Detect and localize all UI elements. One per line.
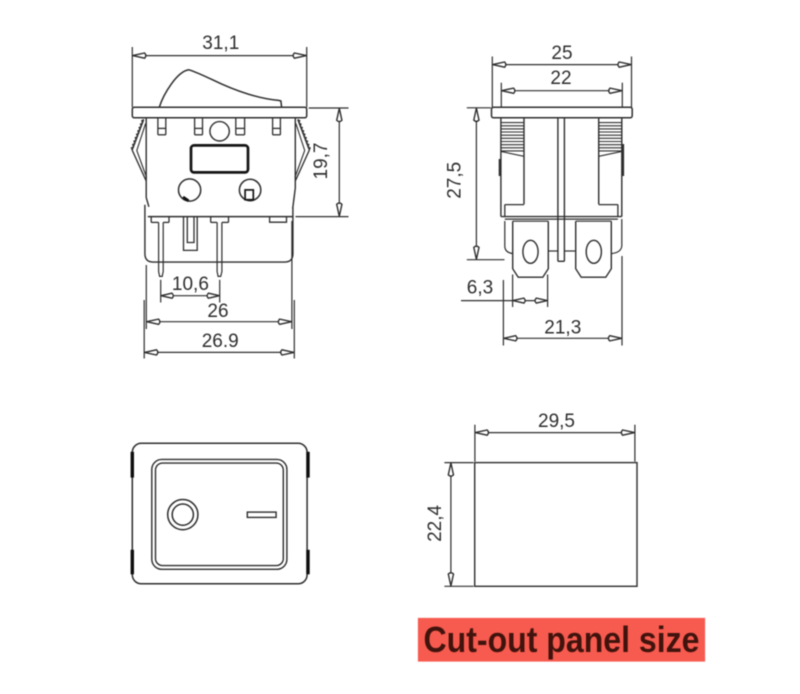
svg-text:22,4: 22,4 bbox=[425, 504, 446, 541]
svg-text:21,3: 21,3 bbox=[544, 318, 581, 339]
svg-text:26: 26 bbox=[207, 301, 228, 322]
svg-text:29,5: 29,5 bbox=[538, 411, 575, 432]
svg-text:27,5: 27,5 bbox=[445, 162, 466, 199]
svg-text:Cut-out panel size: Cut-out panel size bbox=[424, 619, 700, 660]
svg-text:19,7: 19,7 bbox=[311, 143, 332, 180]
svg-text:10,6: 10,6 bbox=[172, 274, 209, 295]
svg-text:6,3: 6,3 bbox=[467, 278, 493, 299]
svg-text:31,1: 31,1 bbox=[202, 33, 239, 54]
svg-text:22: 22 bbox=[550, 68, 571, 89]
svg-text:25: 25 bbox=[551, 43, 572, 64]
svg-text:26.9: 26.9 bbox=[202, 331, 239, 352]
